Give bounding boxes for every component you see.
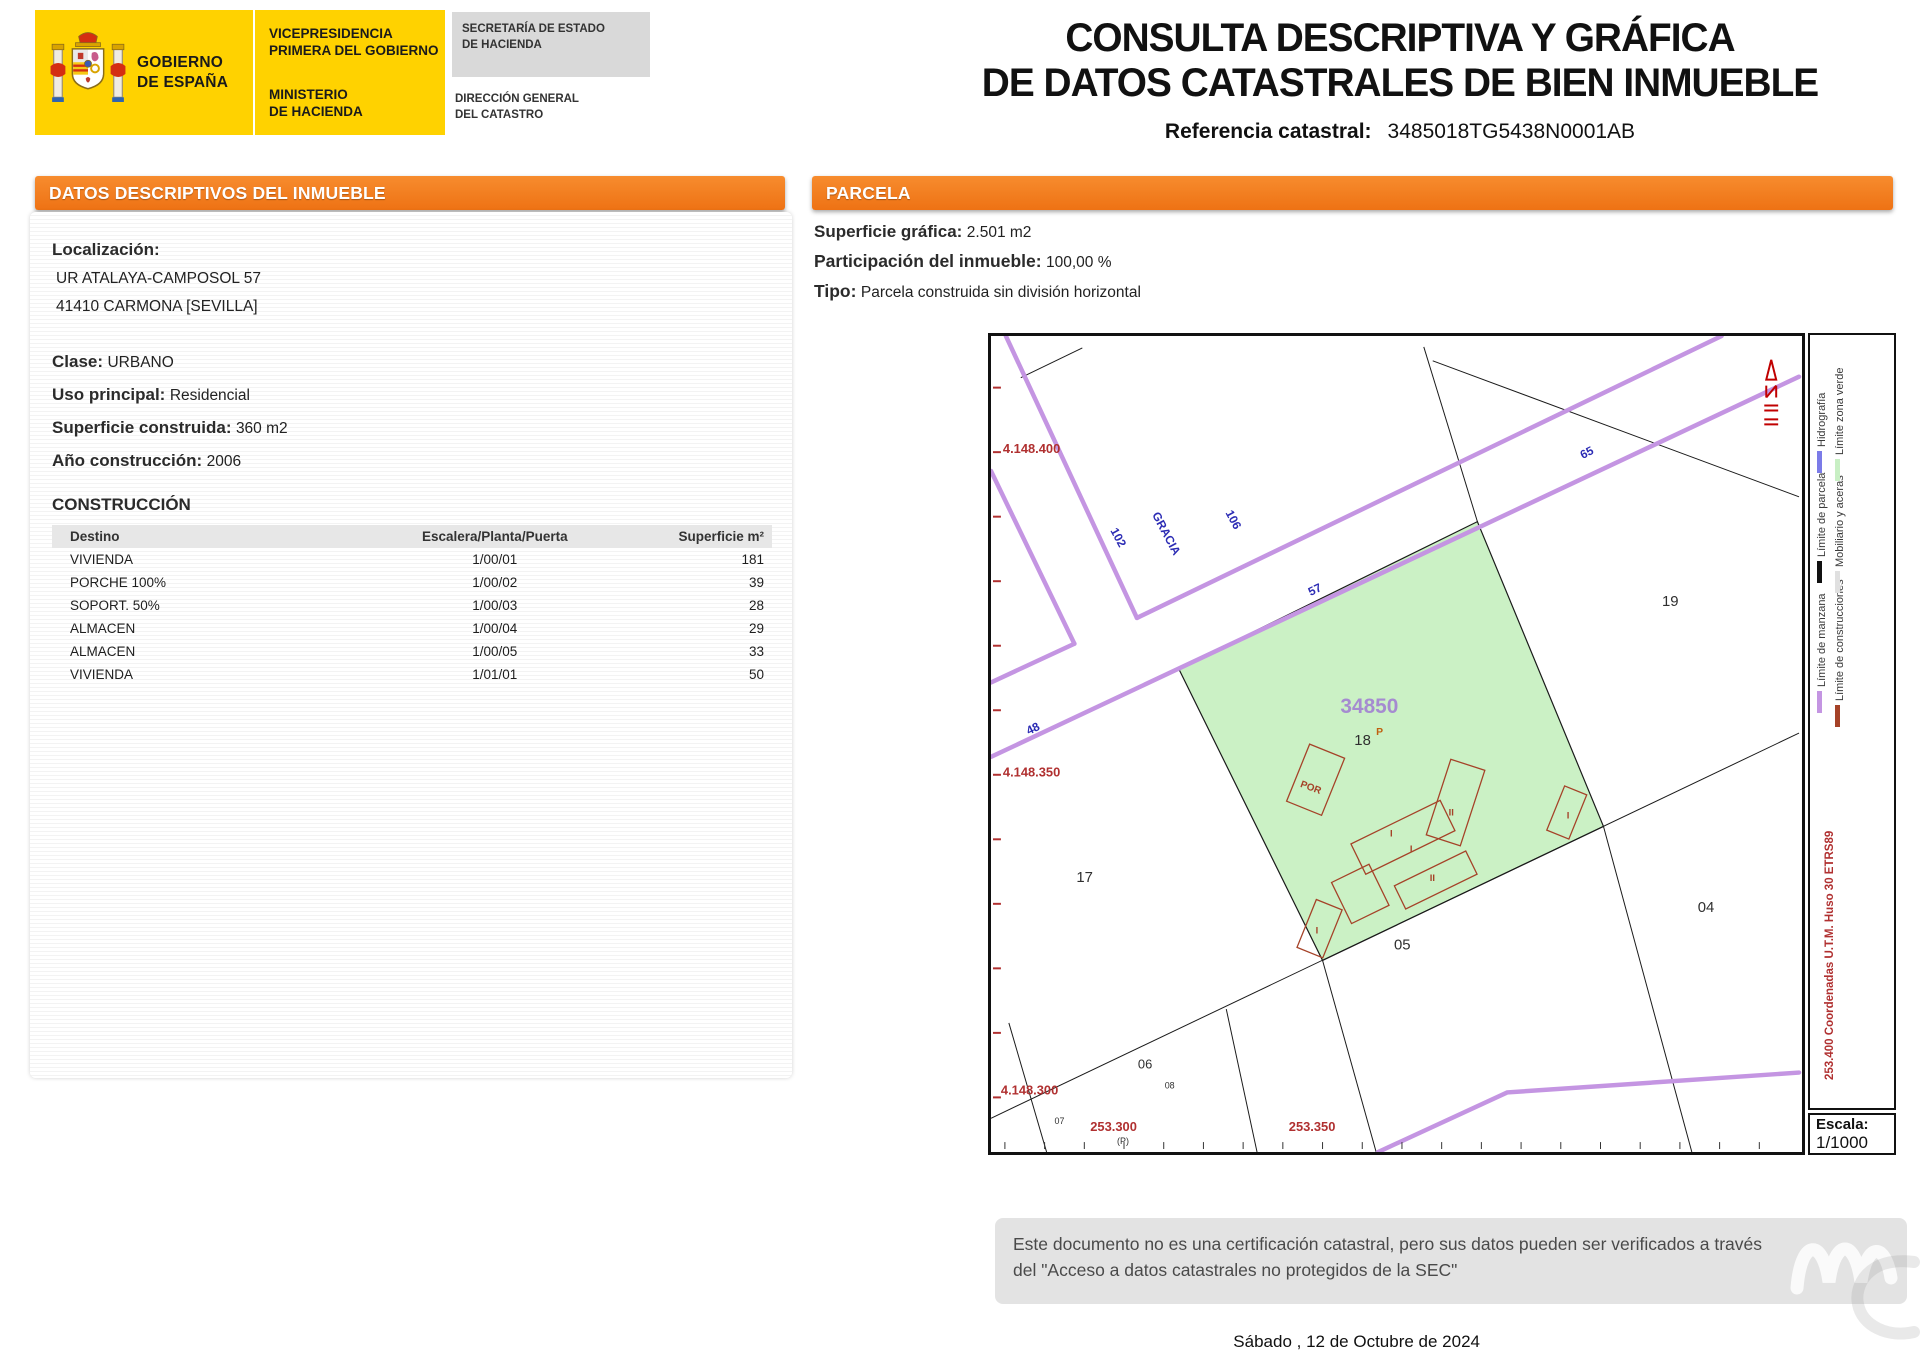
table-row: PORCHE 100%1/00/0239 — [52, 571, 772, 594]
direccion-general-cell: DIRECCIÓN GENERAL DEL CATASTRO — [455, 92, 579, 123]
table-cell: PORCHE 100% — [52, 571, 376, 594]
red-map-symbol — [1764, 360, 1778, 425]
catastro-corner-watermark-icon — [1848, 1252, 1920, 1347]
table-cell: ALMACEN — [52, 617, 376, 640]
document-title-block: CONSULTA DESCRIPTIVA Y GRÁFICA DE DATOS … — [950, 16, 1850, 144]
gobierno-cell: GOBIERNO DE ESPAÑA — [35, 10, 255, 135]
anio-construccion-label: Año construcción: — [52, 451, 202, 470]
legend-limite-construcciones: Límite de construcciones — [1834, 579, 1846, 701]
parcel-number-34850: 34850 — [1340, 695, 1398, 718]
clase-row: Clase: URBANO — [52, 352, 792, 372]
spain-coat-of-arms-icon — [49, 27, 127, 118]
table-cell: 1/00/04 — [376, 617, 614, 640]
street-number-102: 102 — [1107, 525, 1129, 549]
property-data-panel: Localización: UR ATALAYA-CAMPOSOL 57 414… — [30, 212, 792, 1078]
storey-label: II — [1449, 806, 1454, 817]
parcela-title: PARCELA — [826, 183, 911, 204]
construccion-title: CONSTRUCCIÓN — [52, 495, 792, 515]
vicepresidencia-label: VICEPRESIDENCIA PRIMERA DEL GOBIERNO — [269, 26, 445, 60]
street-number-106: 106 — [1223, 508, 1245, 532]
storey-label: I — [1390, 827, 1393, 838]
plot-number-04: 04 — [1698, 900, 1715, 916]
plot-number-05: 05 — [1394, 937, 1411, 953]
table-row: ALMACEN1/00/0429 — [52, 617, 772, 640]
plot-number-07: 07 — [1055, 1116, 1065, 1126]
document-date: Sábado , 12 de Octubre de 2024 — [1100, 1332, 1480, 1352]
utm-y-label: 4.148.400 — [1003, 441, 1060, 456]
tipo-row: Tipo: Parcela construida sin división ho… — [814, 281, 1141, 302]
participacion-label: Participación del inmueble: — [814, 251, 1042, 271]
table-cell: 1/00/02 — [376, 571, 614, 594]
table-row: ALMACEN1/00/0533 — [52, 640, 772, 663]
tipo-label: Tipo: — [814, 281, 856, 301]
datos-descriptivos-title: DATOS DESCRIPTIVOS DEL INMUEBLE — [49, 183, 386, 204]
ministerio-label: MINISTERIO DE HACIENDA — [269, 87, 445, 121]
secretaria-cell: SECRETARÍA DE ESTADO DE HACIENDA — [452, 12, 650, 77]
cadastral-reference-row: Referencia catastral: 3485018TG5438N0001… — [950, 120, 1850, 144]
table-cell: VIVIENDA — [52, 663, 376, 686]
table-cell: 1/00/03 — [376, 594, 614, 617]
scale-box: Escala: 1/1000 — [1808, 1113, 1896, 1155]
utm-x-label: 253.350 — [1289, 1119, 1336, 1134]
storey-label: I — [1410, 843, 1413, 854]
legend-hidrografia: Hidrografía — [1816, 393, 1828, 447]
plot-number-17: 17 — [1076, 870, 1093, 886]
utm-coordinates-label: 253.400 Coordenadas U.T.M. Huso 30 ETRS8… — [1824, 831, 1836, 1080]
clase-value: URBANO — [107, 354, 173, 371]
table-cell: 181 — [614, 548, 772, 571]
legend-zona-verde: Límite zona verde — [1834, 368, 1846, 455]
document-title-line1: CONSULTA DESCRIPTIVA Y GRÁFICA — [964, 16, 1837, 61]
table-cell: 33 — [614, 640, 772, 663]
col-header-destino: Destino — [52, 525, 376, 548]
parcela-fields: Superficie gráfica: 2.501 m2 Participaci… — [814, 222, 1141, 302]
parcel-34850-green-zone — [1179, 522, 1604, 961]
ministry-cell: VICEPRESIDENCIA PRIMERA DEL GOBIERNO MIN… — [255, 10, 445, 135]
legend-swatch-hidrografia — [1817, 451, 1822, 473]
utm-y-label: 4.148.350 — [1003, 765, 1060, 780]
reference-value: 3485018TG5438N0001AB — [1388, 120, 1636, 144]
legend-limite-manzana: Límite de manzana — [1816, 593, 1828, 687]
uso-row: Uso principal: Residencial — [52, 385, 792, 405]
table-cell: SOPORT. 50% — [52, 594, 376, 617]
map-legend: Hidrografía Límite zona verde Límite de … — [1808, 333, 1896, 1110]
parcela-header: PARCELA — [812, 176, 1893, 210]
utm-y-label: 4.148.300 — [1001, 1082, 1058, 1097]
legend-mobiliario: Mobiliario y aceras — [1834, 475, 1846, 567]
address-line2: 41410 CARMONA [SEVILLA] — [56, 298, 792, 316]
legend-limite-parcela: Límite de parcela — [1816, 473, 1828, 557]
street-number-57: 57 — [1306, 580, 1324, 599]
table-cell: 29 — [614, 617, 772, 640]
table-cell: 1/01/01 — [376, 663, 614, 686]
table-cell: 28 — [614, 594, 772, 617]
scale-value: 1/1000 — [1816, 1134, 1894, 1153]
table-cell: ALMACEN — [52, 640, 376, 663]
table-cell: 1/00/01 — [376, 548, 614, 571]
table-row: SOPORT. 50%1/00/0328 — [52, 594, 772, 617]
table-cell: 39 — [614, 571, 772, 594]
table-row: VIVIENDA1/01/0150 — [52, 663, 772, 686]
map-legend-panel: Hidrografía Límite zona verde Límite de … — [1808, 333, 1896, 1155]
secretaria-label: SECRETARÍA DE ESTADO DE HACIENDA — [462, 22, 650, 53]
clase-label: Clase: — [52, 352, 103, 371]
legend-swatch-construcciones — [1835, 705, 1840, 727]
cadastral-map: 4.148.400 4.148.350 4.148.300 253.300 25… — [988, 333, 1805, 1155]
tipo-value: Parcela construida sin división horizont… — [861, 284, 1141, 301]
legend-swatch-manzana — [1817, 691, 1822, 713]
document-title-line2: DE DATOS CATASTRALES DE BIEN INMUEBLE — [964, 61, 1837, 106]
table-row: VIVIENDA1/00/01181 — [52, 548, 772, 571]
reference-label: Referencia catastral: — [1165, 120, 1372, 144]
legend-swatch-parcela — [1817, 561, 1822, 583]
street-number-65: 65 — [1578, 443, 1596, 462]
table-cell: 50 — [614, 663, 772, 686]
superficie-construida-label: Superficie construida: — [52, 418, 231, 437]
utm-x-label: 253.300 — [1090, 1119, 1137, 1134]
legend-swatch-mobiliario — [1835, 571, 1840, 593]
superficie-construida-value: 360 m2 — [236, 420, 288, 437]
plot-number-08: 08 — [1165, 1080, 1175, 1090]
superficie-construida-row: Superficie construida: 360 m2 — [52, 418, 792, 438]
construction-table: Destino Escalera/Planta/Puerta Superfici… — [52, 525, 772, 686]
superficie-grafica-label: Superficie gráfica: — [814, 222, 962, 241]
plot-p-superscript: P — [1376, 727, 1383, 738]
participacion-value: 100,00 % — [1046, 254, 1112, 271]
superficie-grafica-row: Superficie gráfica: 2.501 m2 — [814, 222, 1141, 242]
gobierno-label: GOBIERNO DE ESPAÑA — [137, 53, 228, 92]
datos-descriptivos-header: DATOS DESCRIPTIVOS DEL INMUEBLE — [35, 176, 785, 210]
plot-number-19: 19 — [1662, 594, 1679, 610]
p-marker-label: (P) — [1117, 1136, 1129, 1146]
uso-label: Uso principal: — [52, 385, 165, 404]
table-cell: VIVIENDA — [52, 548, 376, 571]
table-cell: 1/00/05 — [376, 640, 614, 663]
direccion-label: DIRECCIÓN GENERAL DEL CATASTRO — [455, 92, 579, 123]
street-name-gracia: GRACIA — [1149, 510, 1184, 558]
storey-label: I — [1567, 809, 1570, 820]
address-line1: UR ATALAYA-CAMPOSOL 57 — [56, 270, 792, 288]
storey-label: II — [1430, 872, 1435, 883]
construction-table-header-row: Destino Escalera/Planta/Puerta Superfici… — [52, 525, 772, 548]
anio-construccion-value: 2006 — [207, 453, 241, 470]
legend-swatch-zona-verde — [1835, 459, 1840, 481]
col-header-superficie: Superficie m² — [614, 525, 772, 548]
anio-construccion-row: Año construcción: 2006 — [52, 451, 792, 471]
disclaimer-box: Este documento no es una certificación c… — [995, 1218, 1907, 1304]
plot-number-18: 18 — [1354, 733, 1371, 749]
storey-label: I — [1316, 925, 1319, 936]
disclaimer-text: Este documento no es una certificación c… — [1013, 1234, 1762, 1280]
participacion-row: Participación del inmueble: 100,00 % — [814, 251, 1141, 272]
col-header-escalera: Escalera/Planta/Puerta — [376, 525, 614, 548]
scale-label: Escala: — [1816, 1117, 1894, 1134]
uso-value: Residencial — [170, 387, 250, 404]
localizacion-label: Localización: — [52, 240, 792, 260]
superficie-grafica-value: 2.501 m2 — [967, 224, 1032, 241]
cadastral-map-section: 4.148.400 4.148.350 4.148.300 253.300 25… — [988, 333, 1896, 1155]
plot-number-06: 06 — [1138, 1057, 1152, 1072]
government-header: GOBIERNO DE ESPAÑA VICEPRESIDENCIA PRIME… — [35, 10, 445, 135]
construction-table-body: VIVIENDA1/00/01181PORCHE 100%1/00/0239SO… — [52, 548, 772, 686]
